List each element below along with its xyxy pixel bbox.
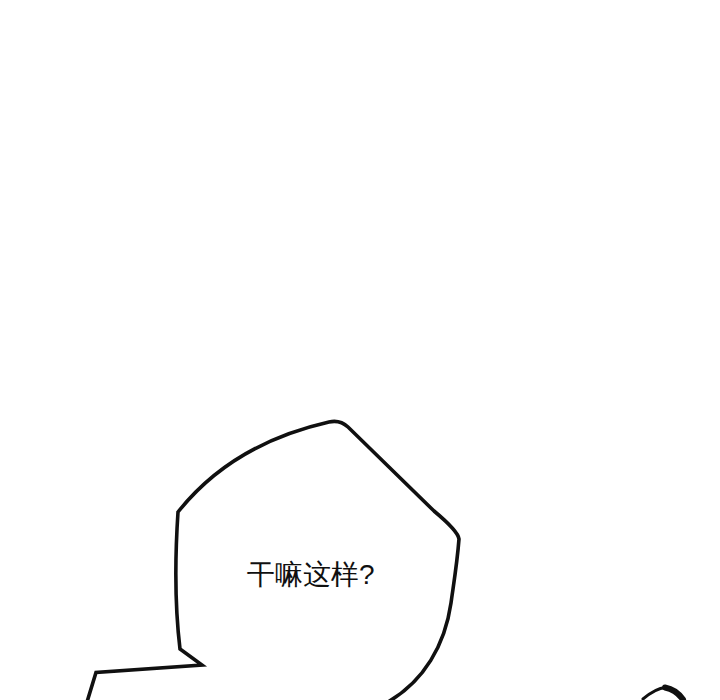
speech-bubble-text: 干嘛这样?: [247, 560, 407, 591]
corner-ink-stroke-thick: [665, 688, 683, 700]
panel-artwork: [0, 0, 720, 700]
comic-panel: 干嘛这样?: [0, 0, 720, 700]
